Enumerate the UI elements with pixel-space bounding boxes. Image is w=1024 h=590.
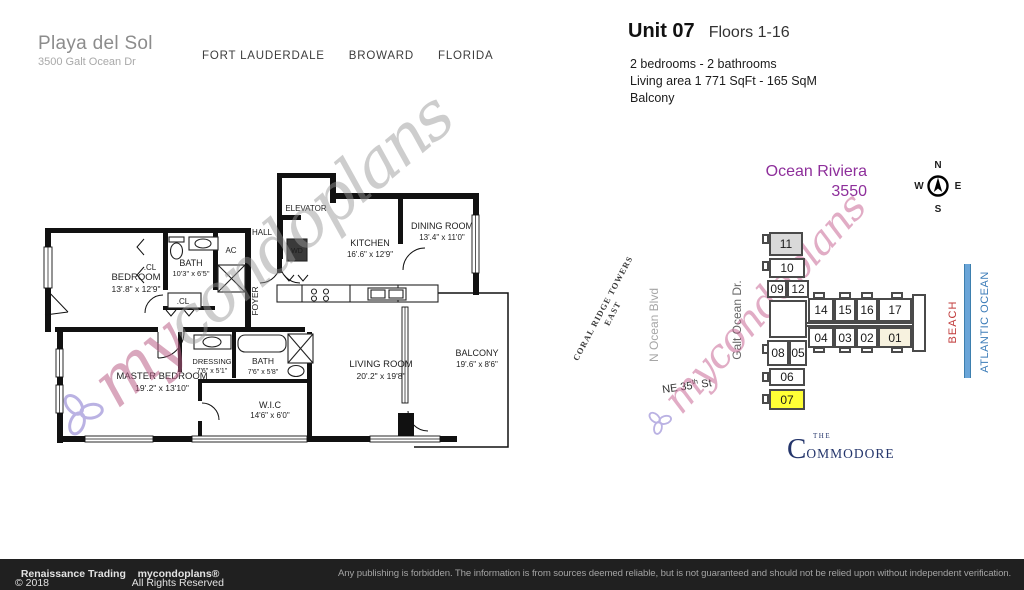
building-address: 3500 Galt Ocean Dr: [38, 56, 136, 68]
unit-cell-15: 15: [834, 298, 856, 322]
state-label: FLORIDA: [438, 50, 493, 62]
sitemap-building-name: Ocean Riviera: [765, 162, 867, 182]
balcony-bump: [762, 394, 769, 404]
commodore-the: THE: [813, 432, 831, 440]
master-bedroom-label: MASTER BEDROOM: [116, 371, 207, 382]
beach-label: BEACH: [947, 292, 959, 352]
unit-cell-04: 04: [808, 327, 834, 348]
unit-cell-10: 10: [769, 258, 805, 278]
elevator-label: ELEVATOR: [285, 204, 327, 213]
street-n-ocean-blvd: N Ocean Blvd: [647, 270, 661, 380]
coral-ridge-line2: EAST: [580, 258, 646, 369]
coral-ridge-line1: CORAL RIDGE TOWERS: [570, 253, 636, 364]
watermark-flower-icon: [640, 403, 677, 440]
footer-disclaimer: Any publishing is forbidden. The informa…: [338, 568, 1011, 579]
unit-bed-bath: 2 bedrooms - 2 bathrooms: [630, 56, 817, 73]
unit-cell-12: 12: [787, 280, 809, 298]
unit-area: Living area 1 771 SqFt - 165 SqM: [630, 73, 817, 90]
sitemap-building-footprint: 11 10 09 12 08 05 06 07 14 15 16 17 04 0…: [755, 228, 935, 413]
bath1-label: BATH: [179, 258, 202, 268]
dressing-label: DRESSING: [192, 357, 231, 366]
footer-rights: All Rights Reserved: [132, 577, 224, 589]
bedroom-dims: 13'.8" x 12'9": [112, 284, 161, 294]
commodore-logo: THE COMMODORE: [787, 438, 1024, 463]
unit-cell-16: 16: [856, 298, 878, 322]
unit-floors: Floors 1-16: [709, 24, 790, 42]
unit-cell-07-highlighted: 07: [769, 389, 805, 410]
balcony-label: BALCONY: [455, 348, 498, 358]
bath2-label: BATH: [252, 356, 274, 366]
commodore-c: C: [787, 433, 806, 465]
street-galt-ocean-dr: Galt Ocean Dr.: [730, 265, 744, 375]
unit-cell-14: 14: [808, 298, 834, 322]
sitemap-building-number: 3550: [765, 182, 867, 202]
living-room-dims: 20'.2" x 19'8": [357, 371, 406, 381]
wic-dims: 14'6" x 6'0": [250, 411, 290, 420]
location-row: FORT LAUDERDALE BROWARD FLORIDA: [202, 50, 493, 62]
wic-label: W.I.C: [259, 400, 281, 410]
living-room-label: LIVING ROOM: [349, 359, 412, 370]
closet2-label: .CL: [177, 297, 190, 306]
compass-icon: N W E S: [913, 156, 965, 214]
kitchen-label: KITCHEN: [350, 238, 390, 248]
ne35-text: NE 35: [661, 380, 693, 396]
compass-e: E: [955, 181, 962, 192]
compass-s: S: [935, 204, 942, 214]
street-ne-35th: NE 35th St: [661, 377, 712, 396]
building-junction: [769, 300, 807, 338]
master-bedroom-dims: 19'.2" x 13'10": [135, 383, 189, 393]
balcony-bump: [762, 261, 769, 271]
balcony-bump: [762, 372, 769, 382]
balcony-outline: [414, 293, 508, 447]
street-coral-ridge: CORAL RIDGE TOWERS EAST: [570, 253, 646, 369]
floorplan-labels: ELEVATOR HALL WD AC .CL .CL FOYER BEDROO…: [111, 204, 498, 420]
city-label: FORT LAUDERDALE: [202, 50, 325, 62]
unit-cell-17: 17: [878, 298, 912, 322]
footer-copyright: © 2018: [15, 577, 49, 589]
compass-n: N: [934, 160, 941, 171]
unit-cell-09: 09: [767, 280, 787, 298]
unit-balcony: Balcony: [630, 90, 817, 107]
dining-room-label: DINING ROOM: [411, 221, 473, 231]
bath2-dims: 7'6" x 5'8": [248, 369, 279, 376]
building-name: Playa del Sol: [38, 33, 153, 55]
unit-cell-02: 02: [856, 327, 878, 348]
kitchen-dims: 16'.6" x 12'9": [347, 250, 393, 259]
compass-w: W: [914, 181, 924, 192]
balcony-dims: 19'.6" x 8'6": [456, 360, 498, 369]
hall-label: HALL: [252, 228, 273, 237]
dining-room-dims: 13'.4" x 11'0": [419, 233, 465, 242]
atlantic-ocean-label: ATLANTIC OCEAN: [979, 267, 991, 377]
footer-bar: © 2018 Renaissance Trading All Rights Re…: [0, 559, 1024, 590]
sitemap-building-title: Ocean Riviera 3550: [765, 162, 867, 202]
building-east-cap: [912, 294, 926, 352]
shoreline-bar: [964, 264, 971, 378]
ac-label: AC: [225, 246, 236, 255]
ne35-st: St: [698, 377, 713, 391]
closet-label: .CL: [144, 263, 157, 272]
unit-cell-06: 06: [769, 368, 805, 386]
unit-cell-01: 01: [878, 327, 912, 348]
unit-cell-05: 05: [789, 340, 807, 366]
condo-plan-page: Playa del Sol 3500 Galt Ocean Dr FORT LA…: [0, 0, 1024, 590]
unit-header: Unit 07 Floors 1-16: [628, 20, 790, 43]
county-label: BROWARD: [349, 50, 414, 62]
unit-title: Unit 07: [628, 20, 695, 43]
balcony-bump: [762, 234, 769, 244]
commodore-rest: OMMODORE: [806, 446, 894, 461]
unit-cell-03: 03: [834, 327, 856, 348]
unit-cell-08: 08: [767, 340, 789, 366]
floorplan-drawing: ELEVATOR HALL WD AC .CL .CL FOYER BEDROO…: [40, 165, 515, 460]
dressing-dims: 7'6" x 5'1": [197, 368, 228, 375]
footer-left: © 2018 Renaissance Trading All Rights Re…: [15, 568, 219, 580]
bedroom-label: BEDROOM: [111, 272, 160, 283]
unit-cell-11: 11: [769, 232, 803, 256]
bath1-dims: 10'3" x 6'5": [173, 269, 210, 278]
foyer-label: FOYER: [250, 286, 260, 315]
unit-details: 2 bedrooms - 2 bathrooms Living area 1 7…: [630, 56, 817, 107]
wd-label: WD: [291, 248, 303, 255]
